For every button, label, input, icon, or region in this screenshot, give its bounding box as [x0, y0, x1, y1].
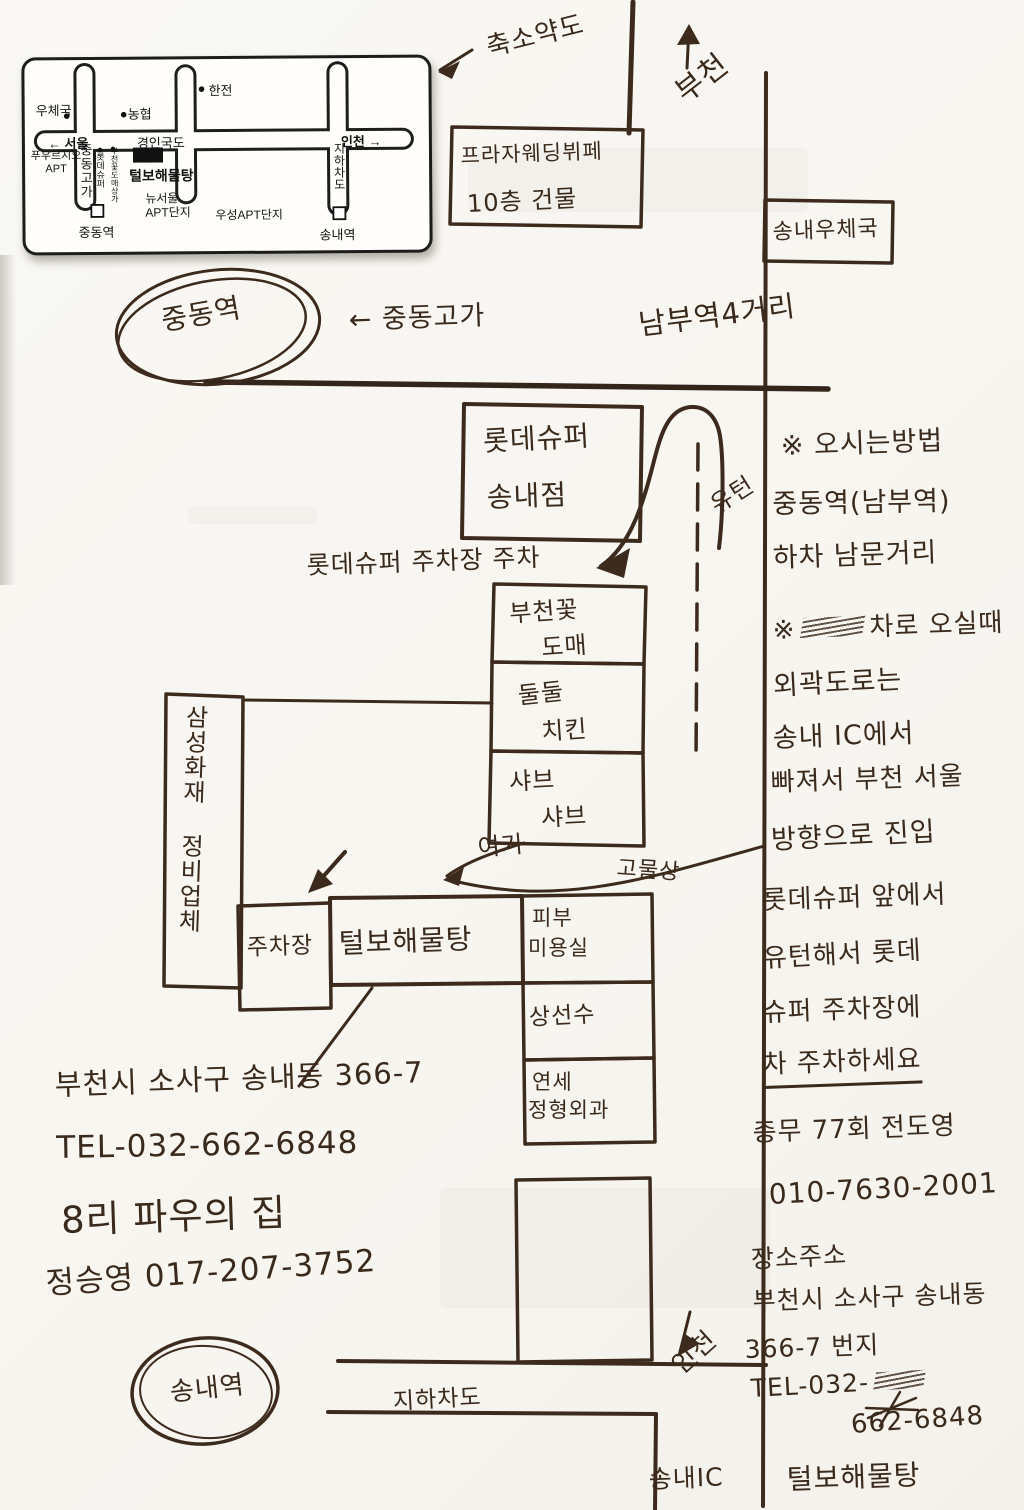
scanned-map-page: 우체국 농협 한전 ← 서울 경인국도 인천 → 푸우르지오 APT 중동고가 … — [0, 0, 1024, 1510]
box-label-yonsei-line2: 정형외과 — [528, 1094, 609, 1124]
box-label-samsung-repair: 삼성화재 정비업체 — [168, 704, 213, 981]
inset-label-gyeongin-road: 경인국도 — [137, 132, 185, 151]
road-center-line — [696, 444, 698, 762]
reduced-map-arrowhead — [438, 61, 460, 79]
right-note-venue-label: 장소주소 — [750, 1235, 848, 1276]
right-note-line7: 빠져서 부천 서울 — [770, 755, 964, 799]
note-address: 부천시 소사구 송내동 366-7 — [54, 1049, 424, 1104]
bucheon-arrowhead — [677, 24, 700, 45]
inset-label-woosung-apt: 우성APT단지 — [215, 206, 283, 223]
box-label-yonsei-line1: 연세 — [532, 1066, 573, 1096]
road-bottom-lower — [328, 1412, 656, 1414]
box-label-shabu-line2: 샤브 — [540, 796, 588, 833]
here-arrowhead — [443, 867, 464, 886]
box-label-flower-line1: 부천꽃 — [508, 589, 580, 629]
crossed-out-word — [800, 616, 866, 638]
label-songnae-ic: 송내IC — [648, 1457, 724, 1496]
label-incheon-south: 인천 — [662, 1321, 724, 1382]
note-parking: 롯데슈퍼 주차장 주차 — [306, 538, 541, 582]
box-label-plaza-line1: 프라자웨딩뷔페 — [460, 135, 603, 170]
box-label-parking: 주차장 — [246, 926, 314, 962]
oval-label-songnae-station: 송내역 — [168, 1364, 246, 1409]
box-label-songnae-post: 송내우체국 — [772, 210, 879, 246]
scan-smudge — [0, 255, 16, 585]
right-note-heading: ※ 오시는방법 — [780, 418, 944, 463]
right-note-restaurant-name: 털보해물탕 — [786, 1453, 921, 1498]
note-tel: TEL-032-662-6848 — [56, 1125, 359, 1166]
box-label-talbo: 털보해물탕 — [338, 917, 473, 962]
inset-label-underpass: 지하차도 — [331, 142, 348, 204]
oval-label-jungdong-station: 중동역 — [158, 286, 244, 339]
uturn-arrowhead — [596, 548, 630, 578]
right-note-line3: 하차 남문거리 — [772, 530, 938, 575]
road-main-horizontal — [206, 382, 828, 389]
uturn-arrow — [601, 407, 723, 566]
box-label-shabu-line1: 샤브 — [508, 760, 556, 797]
box-label-skin-line1: 피부 — [532, 902, 573, 932]
right-note-line11: 슈퍼 주차장에 — [762, 986, 922, 1029]
right-note-line4: ※차로 오실때 — [772, 602, 1004, 647]
note-contact: 정승영 017-207-3752 — [44, 1235, 377, 1303]
bleed-through — [188, 506, 318, 524]
right-note-lot-number: 366-7 번지 — [744, 1325, 880, 1366]
inset-label-jungdong-station: 중동역 — [78, 222, 114, 241]
note-junk-shop: 고물상 — [616, 850, 682, 886]
note-reduced-map: 축소약도 — [482, 4, 588, 64]
inset-label-talbo: 털보해물탕 — [129, 165, 194, 185]
box-label-chicken-line1: 둘둘 — [516, 671, 566, 711]
box-label-plaza-line2: 10층 건물 — [466, 178, 578, 219]
label-bucheon-north: 부천 — [664, 41, 736, 111]
inset-label-jungdong-overpass: 중동고가 — [76, 143, 96, 215]
printed-inset-map: 우체국 농협 한전 ← 서울 경인국도 인천 → 푸우르지오 APT 중동고가 … — [21, 55, 432, 256]
inset-label-flower-market: 부천꽃도매상가 — [109, 147, 120, 207]
songnae-station-square — [333, 207, 345, 219]
note-underpass: 지하차도 — [392, 1377, 482, 1416]
right-note-line5: 외곽도로는 — [772, 657, 903, 703]
nonghyup-dot — [121, 112, 127, 118]
hanjeon-dot — [199, 86, 205, 92]
box-label-flower-line2: 도매 — [540, 625, 589, 663]
right-note-contact-name: 총무 77회 전도영 — [752, 1105, 956, 1149]
right-note-line9: 롯데슈퍼 앞에서 — [762, 874, 947, 917]
inset-label-hanjeon: 한전 — [208, 80, 232, 99]
box-label-skin-line2: 미용실 — [528, 932, 589, 962]
here-arrow-2 — [313, 852, 345, 888]
road-side-line — [243, 700, 492, 703]
right-note-address: 부천시 소사구 송내동 — [752, 1274, 987, 1318]
box-label-chicken-line2: 치킨 — [540, 709, 589, 747]
inset-label-lotte-super: 롯데슈퍼 — [94, 152, 107, 202]
right-note-tel: TEL-032- — [750, 1365, 932, 1403]
right-note-mobile: 010-7630-2001 — [768, 1166, 999, 1211]
right-note-line8: 방향으로 진입 — [770, 809, 936, 857]
inset-label-post-office: 우체국 — [36, 100, 72, 119]
right-note-line12: 차 주차하세요 — [762, 1038, 922, 1089]
note-venue: 8리 파우의 집 — [60, 1182, 287, 1244]
right-note-line10: 유턴해서 롯데 — [762, 930, 923, 975]
right-note-line6: 송내 IC에서 — [772, 711, 915, 755]
box-label-sangseonsu: 상선수 — [528, 995, 596, 1032]
inset-label-nonghyup: 농협 — [128, 104, 152, 123]
crossed-out-word — [873, 1370, 926, 1391]
note-jungdong-overpass: ← 중동고가 — [348, 293, 486, 337]
bleed-through — [440, 1188, 770, 1308]
box-label-lotte-line1: 롯데슈퍼 — [482, 414, 591, 460]
reduced-map-arrow — [440, 50, 472, 70]
right-note-line2: 중동역(남부역) — [772, 479, 951, 521]
note-nambu-crossing: 남부역4거리 — [636, 283, 798, 344]
label-uturn: 유턴 — [702, 466, 760, 520]
note-here: 여기 — [476, 824, 525, 863]
inset-label-new-seoul-apt: 뉴서울 APT단지 — [145, 191, 191, 220]
box-label-lotte-line2: 송내점 — [486, 473, 568, 516]
here-arrowhead-2 — [308, 869, 333, 893]
road-north — [629, 2, 633, 133]
right-note-tel-number: 662-6848 — [850, 1401, 985, 1440]
inset-label-songnae-station: 송내역 — [319, 224, 355, 243]
